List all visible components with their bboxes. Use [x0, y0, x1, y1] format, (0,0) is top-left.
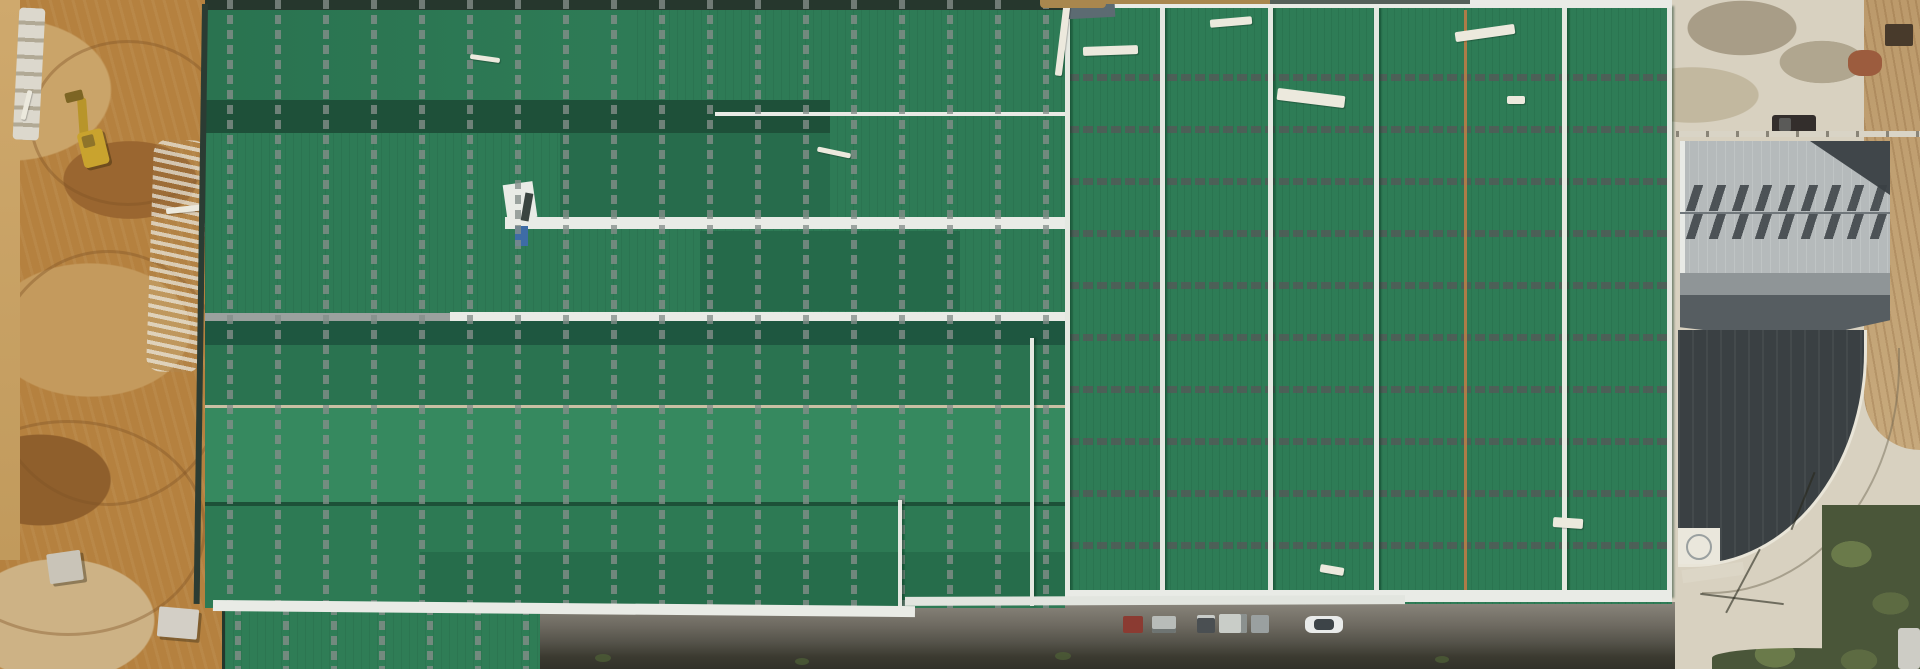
- white-vehicle-corner: [1898, 628, 1920, 669]
- container-stack: [1251, 615, 1269, 633]
- grass-tuft: [1435, 656, 1449, 663]
- eave-walkway-east: [905, 595, 1405, 606]
- roof-east-edge-ridge: [1667, 6, 1672, 598]
- tank-circle: [1686, 534, 1712, 560]
- skylight-strip-columns: [227, 0, 1065, 608]
- factory-roof-left-wing: [205, 0, 1065, 608]
- aerial-photo-scene: [0, 0, 1920, 669]
- factory-roof-right-wing: [1065, 0, 1672, 604]
- white-ridge-vertical: [1030, 338, 1034, 606]
- white-ridge-vertical: [1268, 8, 1273, 596]
- gray-warehouse-roof: [1680, 141, 1890, 297]
- excavator-body: [76, 128, 110, 169]
- red-brown-debris-pile: [1848, 50, 1882, 76]
- utility-pole-shadow: [1700, 593, 1784, 605]
- container-stack: [1152, 616, 1176, 633]
- vegetation-strip: [1712, 648, 1920, 669]
- light-container-stack: [1219, 614, 1247, 633]
- white-ridge-vertical: [1160, 8, 1165, 596]
- annex-roof: [222, 606, 540, 669]
- rust-seam-line: [1464, 10, 1467, 596]
- roof-vent-shadow-row: [1686, 185, 1890, 211]
- lower-roof-shade: [1680, 273, 1890, 297]
- white-car: [1305, 616, 1343, 633]
- concrete-debris-block: [46, 550, 84, 584]
- dirt-sliver-top: [1075, 0, 1270, 4]
- east-yard: [1672, 0, 1920, 669]
- wing-junction-ridge: [1065, 6, 1070, 598]
- grass-tuft: [795, 658, 809, 665]
- dark-container: [1197, 615, 1215, 633]
- dark-edge-sliver: [1270, 0, 1470, 4]
- white-ridge-vertical: [1562, 8, 1567, 596]
- white-tag: [1507, 96, 1525, 104]
- skylight-strip-columns: [235, 606, 540, 669]
- boundary-fence-line: [1676, 131, 1920, 137]
- grass-tuft: [1055, 652, 1071, 660]
- roof-vent-shadow-row: [1686, 213, 1890, 239]
- white-ridge-vertical: [1374, 8, 1379, 596]
- white-ridge-vertical: [898, 500, 902, 606]
- truck-cab-roof: [1779, 118, 1791, 131]
- white-plank: [1553, 517, 1584, 529]
- car-windshield: [1314, 619, 1334, 630]
- roof-seam: [1680, 212, 1890, 214]
- dark-storage-object: [1885, 24, 1913, 46]
- white-tank-structure: [1678, 528, 1720, 564]
- red-box-truck: [1123, 616, 1143, 633]
- concrete-debris-block: [157, 606, 199, 639]
- grass-tuft: [595, 654, 611, 662]
- white-plank: [1083, 45, 1138, 56]
